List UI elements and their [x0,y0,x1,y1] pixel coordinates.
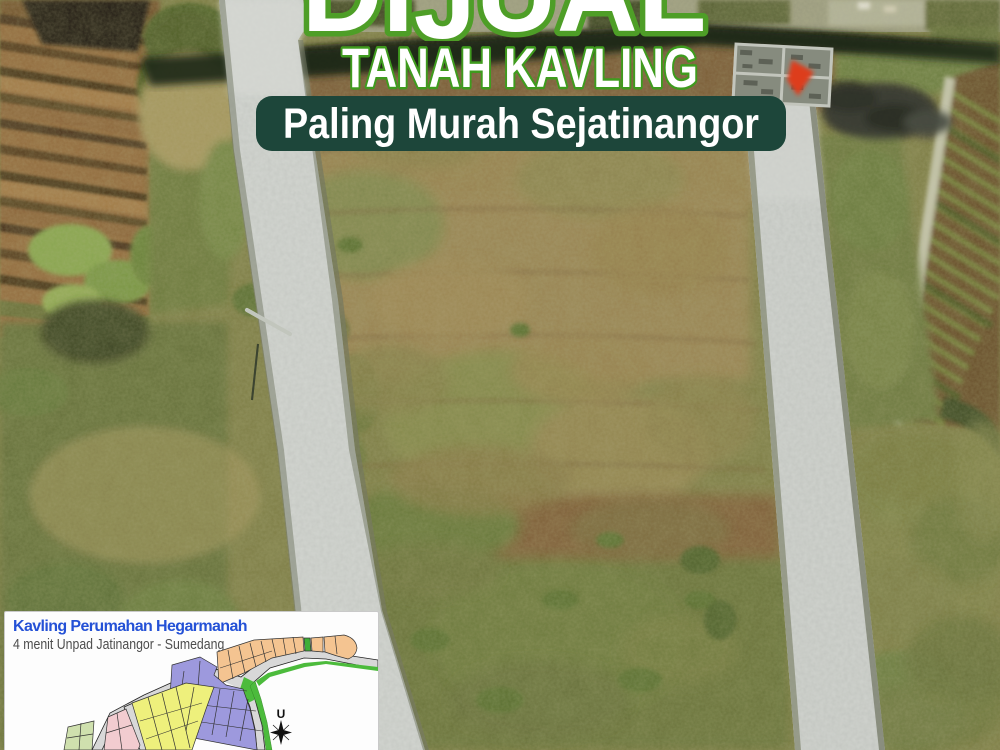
svg-text:DIJUAL: DIJUAL [302,0,706,41]
svg-text:Paling Murah Sejatinangor: Paling Murah Sejatinangor [283,100,759,148]
svg-text:U: U [277,707,286,721]
svg-text:TANAH KAVLING: TANAH KAVLING [342,36,698,96]
